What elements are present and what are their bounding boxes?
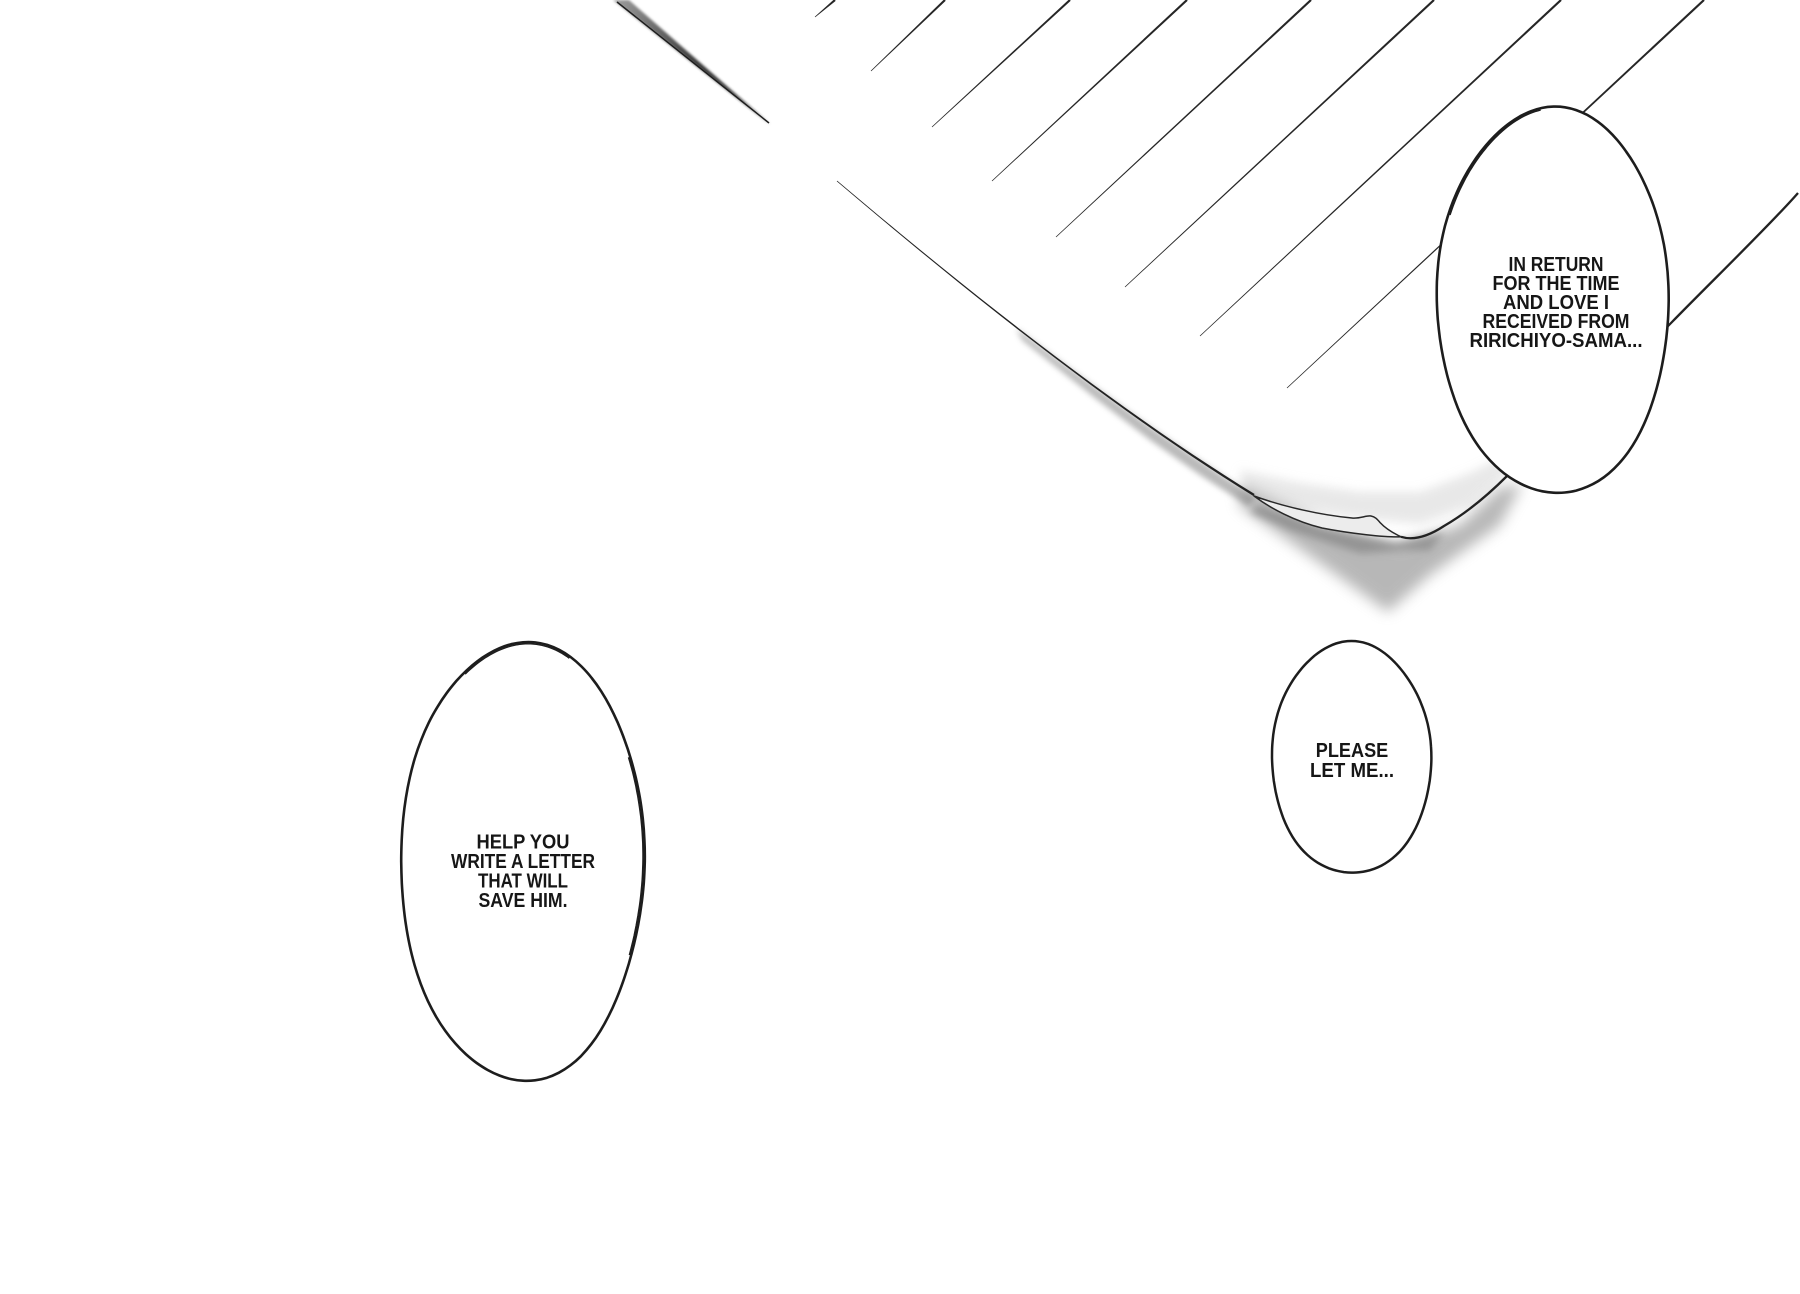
svg-text:RIRICHIYO-SAMA...: RIRICHIYO-SAMA... xyxy=(1470,330,1643,352)
svg-text:PLEASE: PLEASE xyxy=(1316,740,1389,762)
svg-text:SAVE HIM.: SAVE HIM. xyxy=(479,890,568,912)
svg-text:LET ME...: LET ME... xyxy=(1310,760,1394,782)
